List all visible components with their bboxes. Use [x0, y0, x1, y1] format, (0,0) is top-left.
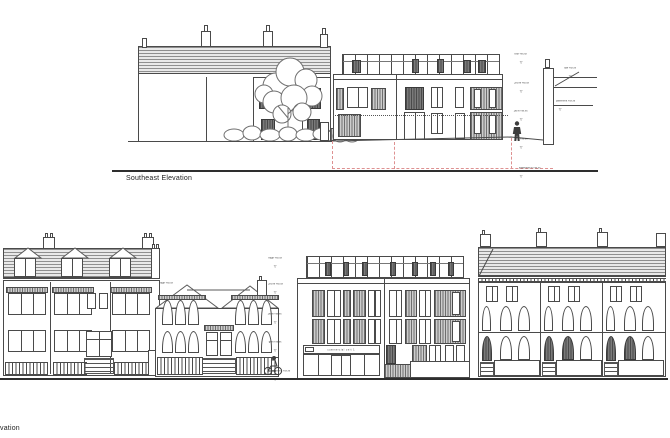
street-ground-line — [0, 378, 668, 380]
window — [445, 345, 454, 362]
level-label: pavement +xx.xx — [271, 370, 290, 373]
string-course — [478, 332, 666, 333]
window — [327, 319, 341, 344]
glazing-pane — [412, 262, 418, 276]
front-wall — [410, 361, 470, 378]
terrace-right-roof — [478, 247, 666, 276]
bay-window — [112, 330, 150, 352]
bay-window — [162, 331, 202, 353]
window — [375, 290, 381, 317]
louvre-panel — [353, 319, 366, 344]
louvre-panel — [353, 290, 366, 317]
window — [506, 286, 518, 302]
glazing-pane — [343, 262, 349, 276]
louvre-panel — [343, 290, 351, 317]
datum-icon: ▽ — [266, 292, 285, 295]
chimney-pot — [149, 233, 152, 238]
chimney-pot — [599, 228, 602, 233]
entrance-door — [86, 331, 112, 357]
front-railings — [5, 362, 48, 375]
window — [548, 286, 560, 302]
front-wall — [556, 360, 602, 376]
louvre-panel — [312, 290, 325, 317]
chimney-pot — [144, 233, 147, 238]
party-wall-line — [540, 282, 541, 377]
shopfront-mullion — [318, 354, 319, 376]
glazing-pane — [362, 262, 368, 276]
chimney-stack — [597, 232, 608, 247]
front-railings — [53, 362, 87, 375]
window — [456, 345, 465, 362]
window — [389, 290, 402, 317]
window — [452, 321, 460, 342]
porch-canopy — [204, 325, 234, 331]
chimney-stack — [656, 233, 666, 247]
chimney-stack — [151, 248, 160, 279]
cornice-line — [3, 278, 160, 279]
level-label: 1st ffl +xx.xx — [268, 313, 282, 316]
front-wall — [494, 360, 540, 376]
datum-icon: ▽ — [266, 266, 285, 269]
window — [419, 290, 431, 317]
cornice-line — [478, 276, 666, 277]
door — [206, 332, 218, 356]
bay-window — [8, 330, 46, 352]
window — [419, 319, 431, 344]
datum-icon: ▽ — [266, 350, 285, 353]
entrance-steps — [480, 362, 494, 376]
louvre-panel — [434, 290, 466, 317]
front-wall — [157, 357, 203, 375]
drawing-title-cropped: vation — [0, 425, 20, 432]
bay-window — [8, 293, 46, 315]
shopfront-mullion — [364, 354, 365, 376]
louvre-panel — [312, 319, 325, 344]
window — [389, 319, 402, 344]
louvre-panel — [405, 290, 417, 317]
louvre-panel — [343, 319, 351, 344]
dormer-window — [61, 258, 83, 277]
dormer-window — [109, 258, 131, 277]
chimney-stack — [536, 232, 547, 247]
glazing-pane — [448, 262, 454, 276]
entrance-steps — [542, 362, 556, 376]
door — [386, 345, 396, 364]
window — [452, 292, 460, 315]
bay-window — [112, 293, 150, 315]
hip-roof-line — [476, 246, 496, 278]
entrance-steps — [202, 358, 236, 374]
window — [327, 290, 341, 317]
front-railings — [114, 362, 150, 375]
glazing-pane — [390, 262, 396, 276]
shop-door — [331, 355, 351, 376]
chimney-pot — [45, 233, 48, 238]
louvre-panel — [412, 345, 427, 362]
level-marker: 2nd ffl +xx.xx ▽ — [258, 274, 292, 297]
front-wall — [618, 360, 664, 376]
window — [486, 286, 498, 302]
chimney-pot — [152, 244, 155, 249]
shop-sign-text: commercial unit 1 — [328, 348, 356, 350]
level-marker: pavement +xx.xx ▽ — [258, 361, 292, 384]
window — [99, 293, 108, 309]
elevation-sheet: roof +xx.xx ▽ 2nd ffl +xx.xx ▽ 1st ffl +… — [0, 0, 670, 438]
chimney-pot — [50, 233, 53, 238]
party-wall-line — [50, 282, 51, 374]
chimney-pot — [538, 228, 541, 233]
level-marker: gf ffl +xx.xx ▽ — [258, 332, 292, 355]
level-label: ridge +xx.xx — [268, 257, 282, 260]
chimney-pot — [156, 244, 159, 249]
louvre-panel — [405, 319, 417, 344]
chimney-pot — [482, 230, 485, 235]
glazing-pane — [430, 262, 436, 276]
louvre-panel — [434, 319, 466, 344]
dormer-window — [14, 258, 36, 277]
chimney-stack — [480, 234, 491, 247]
entrance-steps — [604, 362, 618, 376]
door — [220, 332, 232, 356]
datum-icon: ▽ — [266, 322, 285, 325]
window — [610, 286, 622, 302]
bay-window — [162, 300, 202, 325]
level-marker: ridge +xx.xx ▽ — [258, 248, 292, 271]
window — [568, 286, 580, 302]
entrance-steps — [84, 358, 114, 374]
level-marker: 1st ffl +xx.xx ▽ — [258, 304, 292, 327]
unit-number-plate: 136 — [305, 347, 314, 352]
window — [429, 345, 441, 362]
street-elevation-drawing: ridge +xx.xx — [0, 0, 670, 438]
level-label: gf ffl +xx.xx — [269, 341, 282, 344]
window — [630, 286, 642, 302]
glazing-pane — [325, 262, 331, 276]
window — [375, 319, 381, 344]
party-wall-line — [602, 282, 603, 377]
window — [87, 293, 96, 309]
level-label: 2nd ffl +xx.xx — [268, 283, 283, 286]
